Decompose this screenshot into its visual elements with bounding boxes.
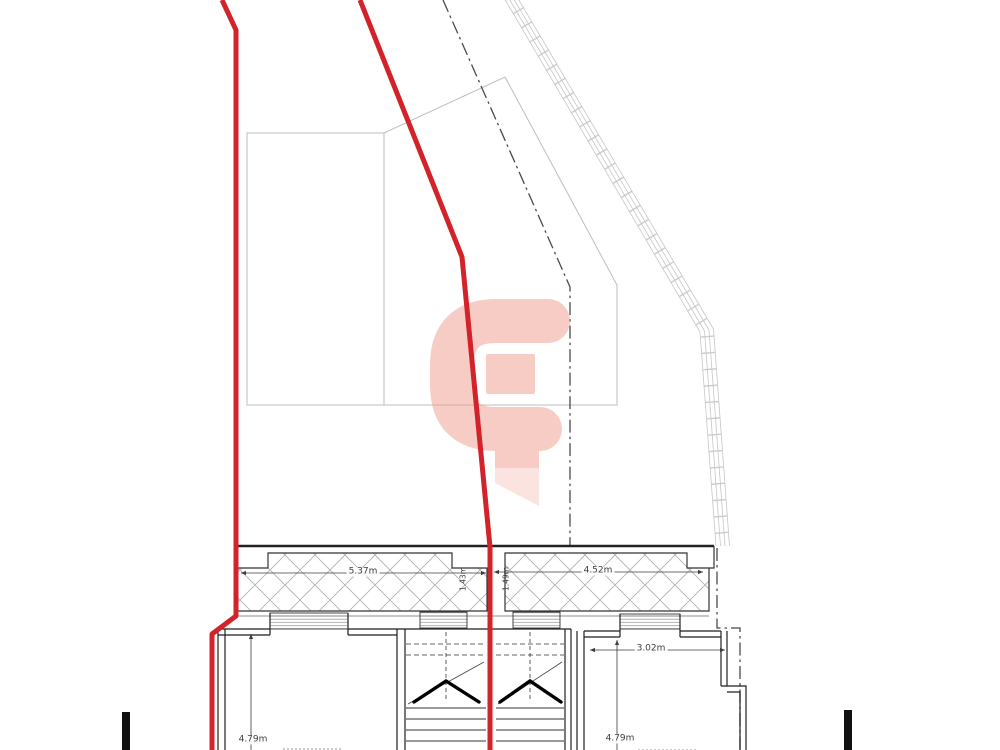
floorplan-canvas: 5.37m 4.52m 1.43m 1.49m 3.02m 4.79m 4.79… [0, 0, 1000, 750]
dim-left-room-depth: 4.79m [237, 736, 270, 745]
dim-band-left-width: 5.37m [347, 568, 380, 577]
illegible-room-label-right [638, 745, 696, 750]
boundary-left-line [212, 0, 236, 750]
dim-right-room-depth: 4.79m [604, 735, 637, 744]
dim-band-left-depth: 1.43m [459, 565, 467, 593]
dim-band-right-depth: 1.49m [502, 565, 510, 593]
floorplan-drawing [0, 0, 1000, 750]
right-room-walls [577, 614, 746, 750]
left-room-walls [218, 613, 397, 750]
corner-wall-stubs [122, 710, 852, 750]
hatched-wall-band [236, 546, 714, 616]
brand-watermark-g-logo [452, 321, 548, 506]
dim-right-room-width: 3.02m [635, 645, 668, 654]
dim-band-right-width: 4.52m [582, 567, 615, 576]
window-sills [270, 612, 680, 629]
g-logo-descender-fade [495, 468, 539, 506]
staircase [406, 632, 564, 741]
g-logo-descender [495, 430, 539, 468]
g-logo-counter [486, 354, 535, 394]
illegible-room-label-left [283, 744, 341, 750]
